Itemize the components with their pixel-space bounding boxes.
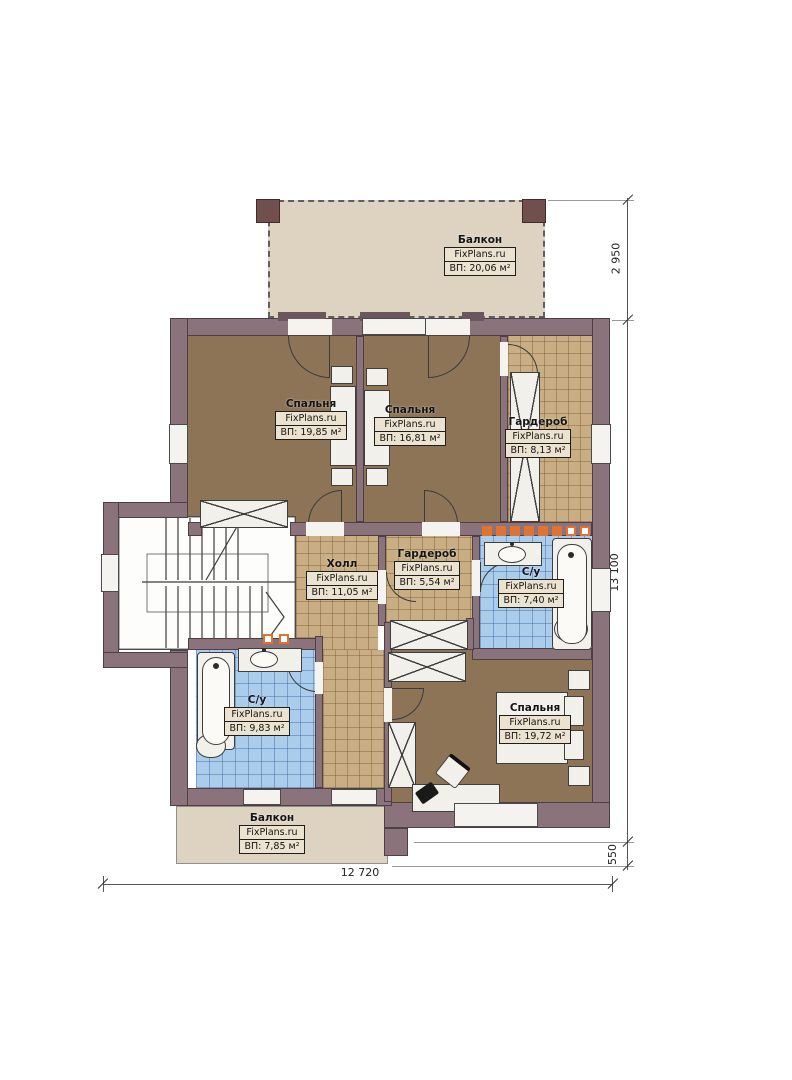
ceiling-spotlight <box>552 526 562 536</box>
room-label-bathroom-left: С/у FixPlans.ru ВП: 9,83 м² <box>209 694 305 736</box>
wardrobe-cabinet <box>388 652 466 682</box>
drain <box>568 552 574 558</box>
door-opening <box>422 522 460 536</box>
nightstand <box>568 670 590 690</box>
brand-watermark: FixPlans.ru <box>276 412 345 425</box>
door-leaf <box>480 562 481 592</box>
door-opening <box>315 662 323 694</box>
dimension-line-vertical <box>627 198 628 870</box>
extension-line <box>548 200 634 201</box>
door-opening <box>306 522 344 536</box>
wall-segment <box>103 652 188 668</box>
nightstand <box>331 468 353 486</box>
room-area: ВП: 7,85 м² <box>240 839 303 853</box>
room-name: Спальня <box>385 404 435 416</box>
room-label-bathroom-right: С/у FixPlans.ru ВП: 7,40 м² <box>483 566 579 608</box>
room-area: ВП: 19,72 м² <box>500 729 569 743</box>
window <box>101 554 119 592</box>
door-leaf <box>392 688 424 689</box>
brand-watermark: FixPlans.ru <box>499 580 562 593</box>
door-opening <box>426 319 470 335</box>
room-label-wardrobe-1: Гардероб FixPlans.ru ВП: 8,13 м² <box>490 416 586 458</box>
room-area: ВП: 11,05 м² <box>307 585 376 599</box>
floor-corridor <box>323 650 384 788</box>
room-label-bedroom-1: Спальня FixPlans.ru ВП: 19,85 м² <box>263 398 359 440</box>
door-leaf <box>341 490 342 524</box>
room-label-balcony-bottom: Балкон FixPlans.ru ВП: 7,85 м² <box>224 812 320 854</box>
window <box>331 789 377 805</box>
ceiling-spotlight <box>510 526 520 536</box>
nightstand <box>568 766 590 786</box>
room-name: Холл <box>327 558 358 570</box>
staircase <box>118 516 296 650</box>
room-area: ВП: 7,40 м² <box>499 593 562 607</box>
room-label-balcony-top: Балкон FixPlans.ru ВП: 20,06 м² <box>432 234 528 276</box>
ceiling-spotlight <box>566 526 576 536</box>
faucet <box>510 542 514 546</box>
door-leaf <box>424 490 425 524</box>
extension-line <box>392 866 634 867</box>
room-name: С/у <box>248 694 266 706</box>
room-name: Гардероб <box>509 416 568 428</box>
brand-watermark: FixPlans.ru <box>395 562 458 575</box>
wardrobe-cabinet <box>388 722 416 788</box>
door-opening <box>288 319 332 335</box>
extension-line <box>414 842 634 843</box>
door-opening <box>500 342 508 376</box>
door-opening <box>384 688 392 722</box>
room-area: ВП: 8,13 м² <box>506 443 569 457</box>
ceiling-spotlight <box>580 526 590 536</box>
floor-plan: Балкон FixPlans.ru ВП: 20,06 м² Спальня … <box>0 0 792 1080</box>
room-name: Спальня <box>510 702 560 714</box>
extension-line <box>612 320 634 321</box>
room-label-bedroom-2: Спальня FixPlans.ru ВП: 16,81 м² <box>362 404 458 446</box>
nightstand <box>331 366 353 384</box>
room-area: ВП: 16,81 м² <box>375 431 444 445</box>
dimension-label-balcony-depth: 2 950 <box>609 243 622 275</box>
ceiling-spotlight <box>279 634 289 644</box>
brand-watermark: FixPlans.ru <box>225 708 288 721</box>
nightstand <box>366 368 388 386</box>
balcony-post <box>522 199 546 223</box>
window <box>591 568 611 612</box>
ceiling-spotlight <box>538 526 548 536</box>
brand-watermark: FixPlans.ru <box>240 826 303 839</box>
room-area: ВП: 20,06 м² <box>445 261 514 275</box>
wall-segment <box>170 650 188 806</box>
wall-segment <box>170 318 188 518</box>
window <box>454 803 538 827</box>
faucet <box>262 648 266 652</box>
window <box>169 424 188 464</box>
ceiling-spotlight <box>263 634 273 644</box>
window <box>362 318 426 335</box>
window <box>591 424 611 464</box>
room-name: Спальня <box>286 398 336 410</box>
room-name: Балкон <box>250 812 294 824</box>
room-name: Гардероб <box>398 548 457 560</box>
dimension-label-balcony-offset: 550 <box>606 844 619 865</box>
dimension-label-house-width: 12 720 <box>320 866 400 879</box>
dimension-line-horizontal <box>103 884 613 885</box>
wall-segment <box>384 828 408 856</box>
sink <box>250 651 278 668</box>
room-label-wardrobe-2: Гардероб FixPlans.ru ВП: 5,54 м² <box>379 548 475 590</box>
ceiling-spotlight <box>496 526 506 536</box>
sink <box>498 546 526 563</box>
wardrobe-cabinet <box>390 620 468 650</box>
room-label-hall: Холл FixPlans.ru ВП: 11,05 м² <box>294 558 390 600</box>
window <box>243 789 281 805</box>
brand-watermark: FixPlans.ru <box>307 572 376 585</box>
room-area: ВП: 9,83 м² <box>225 721 288 735</box>
brand-watermark: FixPlans.ru <box>445 248 514 261</box>
ceiling-spotlight <box>524 526 534 536</box>
room-label-bedroom-3: Спальня FixPlans.ru ВП: 19,72 м² <box>487 702 583 744</box>
brand-watermark: FixPlans.ru <box>500 716 569 729</box>
drain <box>213 663 219 669</box>
nightstand <box>366 468 388 486</box>
room-area: ВП: 19,85 м² <box>276 425 345 439</box>
closet <box>200 500 288 528</box>
ceiling-spotlight <box>482 526 492 536</box>
door-leaf <box>428 336 429 378</box>
balcony-post <box>256 199 280 223</box>
brand-watermark: FixPlans.ru <box>375 418 444 431</box>
wall-segment <box>315 636 323 788</box>
room-area: ВП: 5,54 м² <box>395 575 458 589</box>
room-name: Балкон <box>458 234 502 246</box>
brand-watermark: FixPlans.ru <box>506 430 569 443</box>
room-name: С/у <box>522 566 540 578</box>
